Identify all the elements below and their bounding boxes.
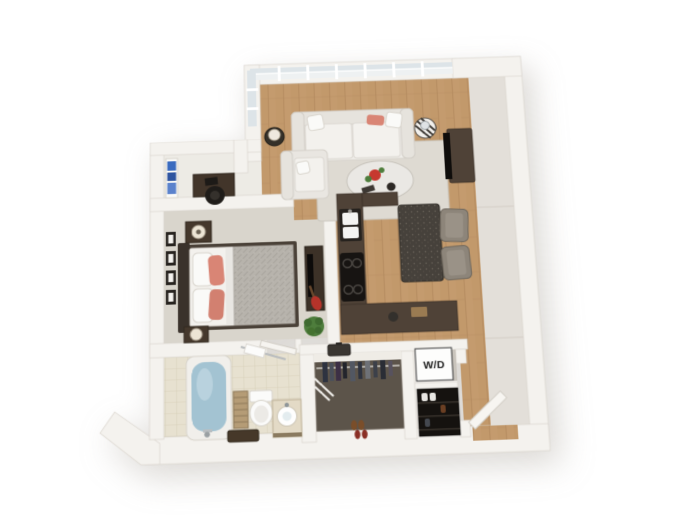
floor-plan-3d: W/D (0, 12, 680, 528)
laundry-jamb-top (456, 349, 467, 363)
dining-chair (441, 245, 472, 280)
cooktop (340, 252, 366, 301)
armchair (281, 150, 329, 200)
cutting-board (411, 307, 428, 317)
blue-books (167, 161, 176, 171)
dining-table (398, 204, 444, 282)
headboard (178, 243, 190, 333)
bath-tile-ledge (164, 357, 185, 448)
coral-bed-pillow (208, 289, 225, 320)
storage-bench (228, 430, 259, 442)
armchair-pillow (296, 160, 311, 174)
table-lamp (190, 328, 202, 340)
white-shoes (421, 393, 428, 401)
side-window-glass (247, 70, 257, 126)
door-threshold (472, 425, 518, 441)
kitchen-sink (339, 208, 362, 241)
coral-bed-pillow (208, 255, 225, 286)
white-shoes (429, 393, 436, 401)
nook-stub-wall (234, 139, 248, 173)
shoe-rack (417, 388, 461, 437)
coral-pillow (366, 115, 384, 126)
media-console (304, 246, 325, 312)
toilet (250, 390, 273, 426)
tv-stand (443, 128, 475, 183)
side-window-mullion (246, 88, 258, 91)
washer-dryer-unit: W/D (415, 347, 457, 382)
bookshelf (166, 158, 178, 198)
vanity (272, 399, 302, 437)
table-lamp (268, 129, 280, 140)
floor-plan-scene: W/D (0, 0, 680, 510)
kitchen-counter-top (362, 192, 398, 206)
washer-dryer-label: W/D (423, 360, 445, 372)
blue-books (167, 183, 176, 195)
sofa-pillow (385, 112, 402, 128)
duvet (233, 245, 295, 325)
laundry-closet: W/D (415, 347, 461, 436)
nightstand (184, 326, 208, 343)
dark-shoes (425, 418, 431, 426)
sofa-pillow (307, 114, 325, 131)
blue-books (167, 172, 176, 181)
top-wall-solid (452, 56, 522, 78)
side-window-mullion (247, 107, 259, 110)
bed (178, 239, 299, 333)
window-mullion (335, 64, 338, 79)
bathtub (186, 355, 232, 440)
left-wall (149, 153, 163, 439)
striped-drum-table (414, 118, 436, 139)
dining-chair (440, 209, 468, 242)
window-mullion (278, 66, 281, 81)
drum-table-lamp (420, 121, 429, 130)
window-mullion (306, 65, 309, 80)
striped-hamper (233, 391, 248, 428)
brown-shoes (440, 405, 446, 413)
side-table-with-lamp (265, 127, 285, 146)
kitchen-counter-bottom (341, 301, 459, 335)
nightstand (186, 221, 212, 243)
